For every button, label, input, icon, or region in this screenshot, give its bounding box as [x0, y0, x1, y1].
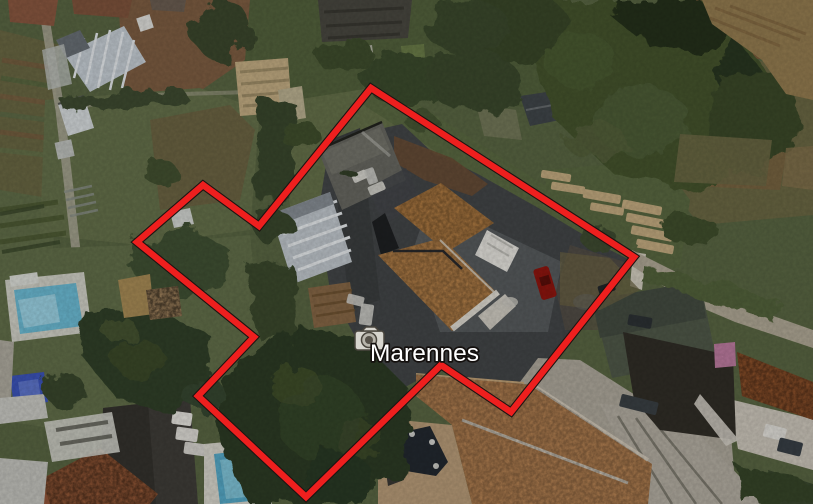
svg-text:Marennes: Marennes: [370, 340, 479, 367]
